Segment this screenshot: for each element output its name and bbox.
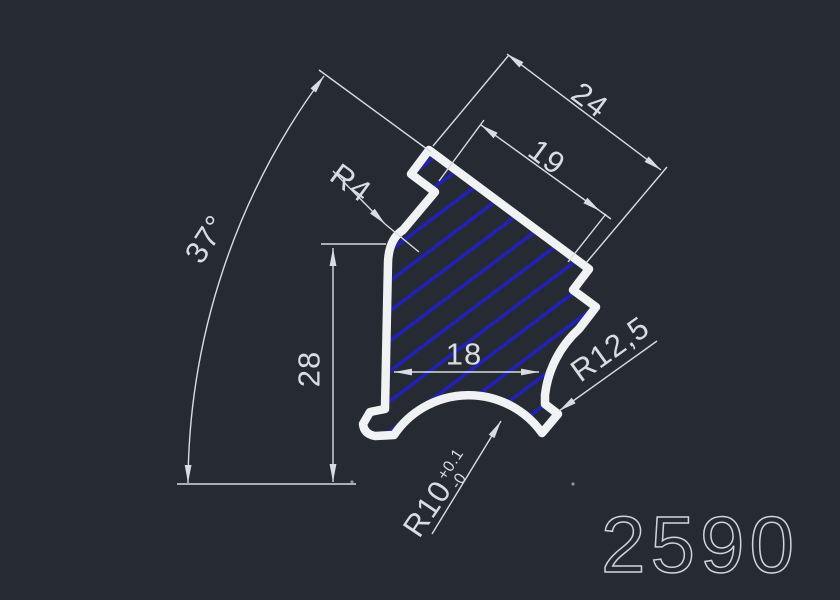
cad-drawing: 24 19 R4 37° 28 18 R12,5 R10 +0.1 -0 259… [0,0,840,600]
part-number-text: 2590 [601,500,799,589]
definition-point [350,480,353,483]
dim-text-28: 28 [292,351,327,387]
cad-canvas: 24 19 R4 37° 28 18 R12,5 R10 +0.1 -0 259… [0,0,840,600]
dim-text-18: 18 [446,337,482,372]
definition-point [571,482,574,485]
